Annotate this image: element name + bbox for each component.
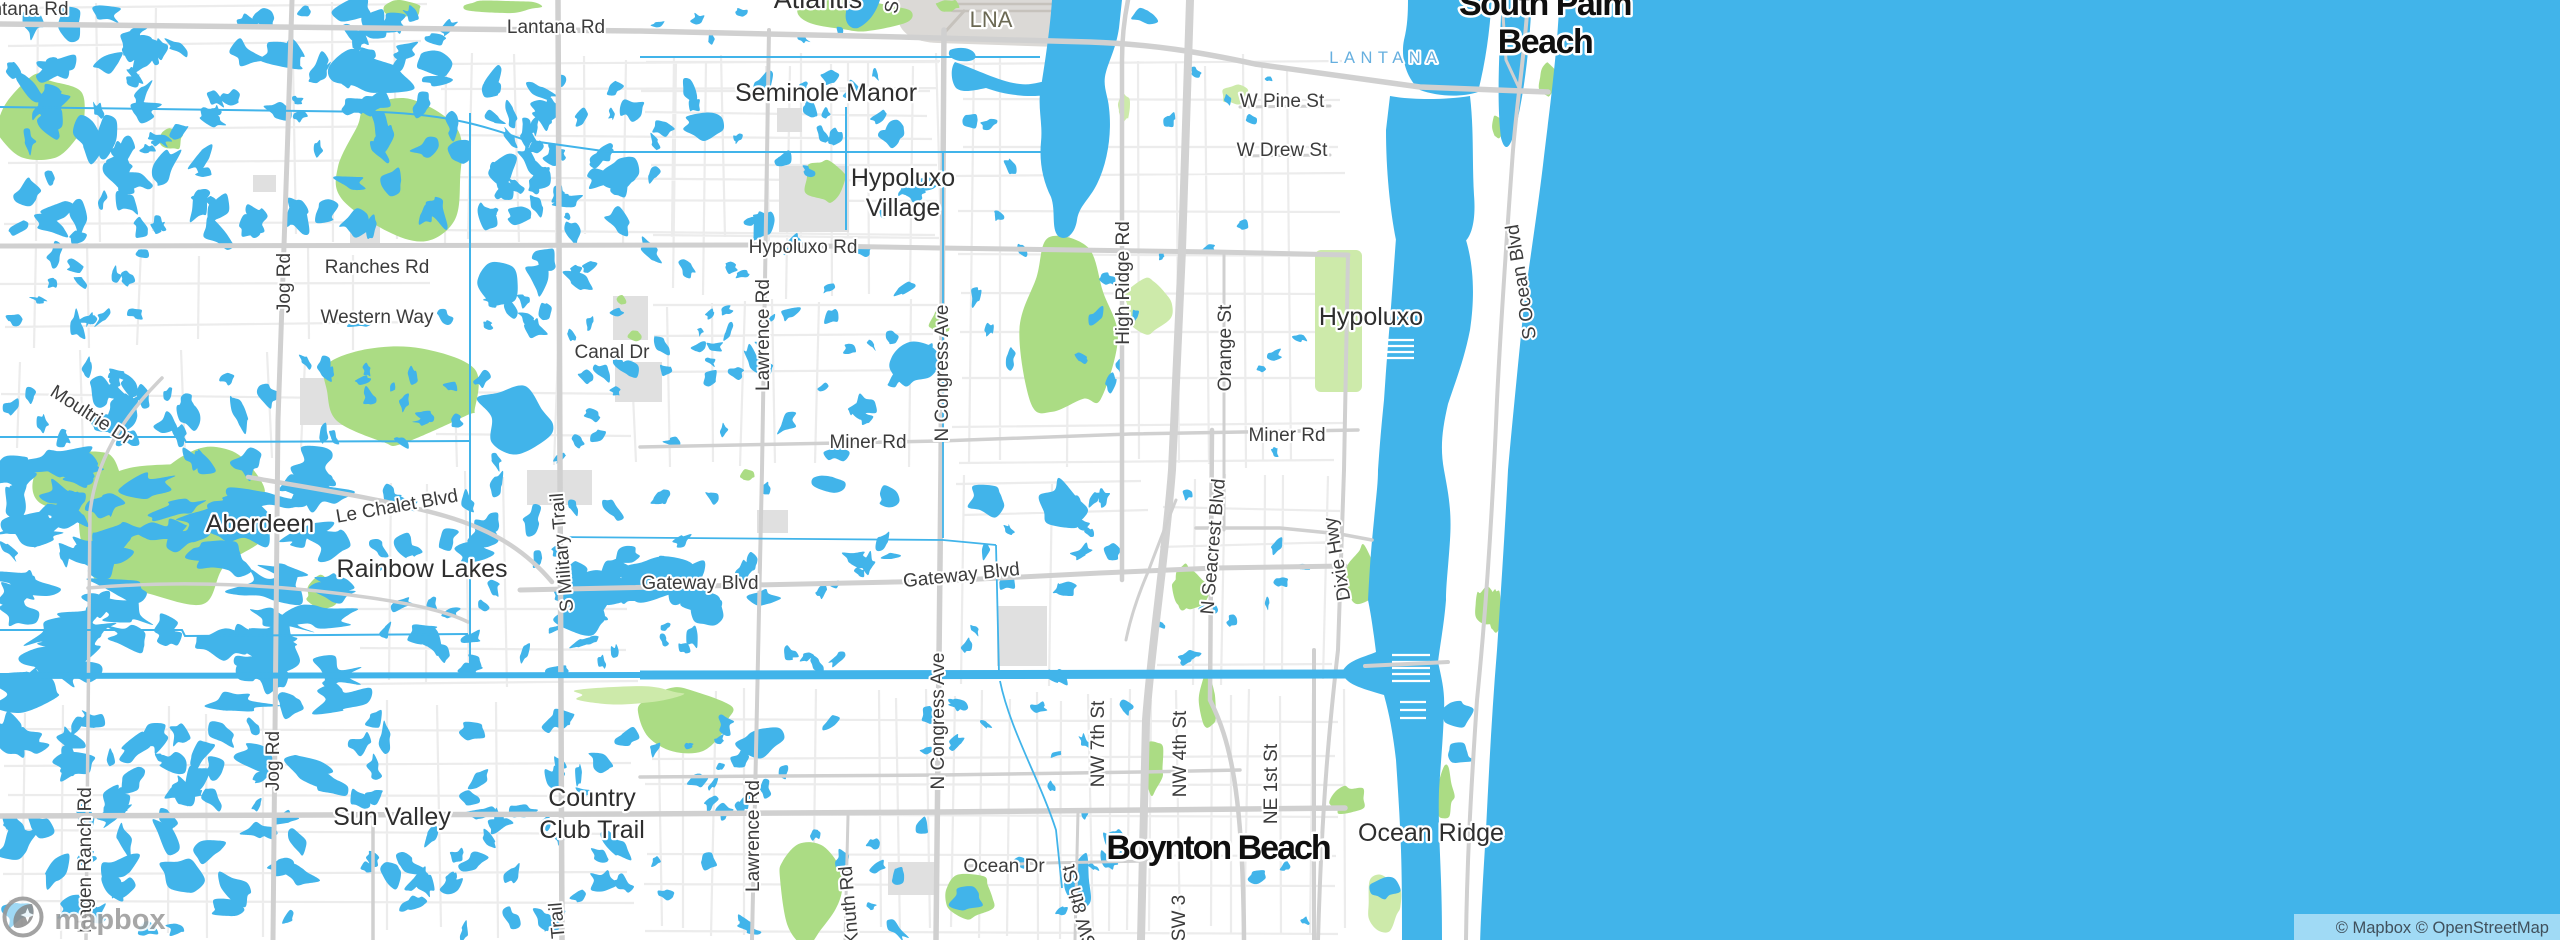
svg-text:Rainbow Lakes: Rainbow Lakes [337, 555, 508, 583]
svg-text:Jog Rd: Jog Rd [263, 731, 284, 791]
svg-text:S: S [881, 0, 904, 15]
svg-text:N Congress Ave: N Congress Ave [928, 653, 949, 790]
svg-text:Ocean Ridge: Ocean Ridge [1358, 819, 1504, 847]
svg-text:Gateway Blvd: Gateway Blvd [641, 573, 758, 594]
svg-text:Aberdeen: Aberdeen [206, 510, 314, 538]
svg-text:Hypoluxo: Hypoluxo [1319, 303, 1423, 331]
svg-text:ntana Rd: ntana Rd [0, 0, 69, 20]
svg-text:W Drew St: W Drew St [1237, 140, 1329, 161]
svg-text:Hypoluxo Rd: Hypoluxo Rd [749, 237, 858, 258]
svg-text:Atlantis: Atlantis [774, 0, 863, 14]
svg-text:Western Way: Western Way [321, 307, 434, 328]
svg-text:NW 4th St: NW 4th St [1170, 710, 1191, 797]
svg-text:Hypoluxo: Hypoluxo [851, 164, 955, 192]
svg-text:Country: Country [548, 784, 636, 812]
svg-text:NW 7th St: NW 7th St [1088, 700, 1109, 787]
svg-text:mapbox: mapbox [54, 904, 165, 936]
svg-text:Ranches Rd: Ranches Rd [325, 257, 430, 278]
svg-text:Miner Rd: Miner Rd [1248, 425, 1325, 446]
svg-text:Sun Valley: Sun Valley [333, 803, 451, 831]
svg-text:High Ridge Rd: High Ridge Rd [1113, 221, 1134, 345]
svg-text:© Mapbox © OpenStreetMap: © Mapbox © OpenStreetMap [2336, 919, 2549, 937]
svg-text:Miner Rd: Miner Rd [829, 432, 906, 453]
svg-text:LANTANA: LANTANA [1329, 49, 1442, 67]
svg-text:Lantana Rd: Lantana Rd [507, 17, 605, 38]
svg-text:Trail: Trail [545, 902, 569, 940]
svg-text:Seminole Manor: Seminole Manor [735, 79, 917, 107]
svg-text:Boynton Beach: Boynton Beach [1106, 829, 1330, 867]
svg-text:SW 3: SW 3 [1169, 895, 1190, 940]
svg-text:Ocean Dr: Ocean Dr [963, 856, 1045, 877]
svg-text:Jog Rd: Jog Rd [274, 253, 295, 313]
svg-text:Village: Village [866, 194, 941, 222]
svg-text:Club Trail: Club Trail [539, 816, 645, 844]
svg-text:LNA: LNA [970, 7, 1013, 32]
svg-text:W Pine St: W Pine St [1240, 91, 1325, 112]
svg-text:NE 1st St: NE 1st St [1261, 743, 1282, 824]
svg-text:Beach: Beach [1498, 23, 1593, 61]
svg-text:Lawrence Rd: Lawrence Rd [753, 279, 774, 391]
svg-text:N Congress Ave: N Congress Ave [932, 305, 953, 442]
svg-text:Orange St: Orange St [1215, 304, 1236, 391]
svg-text:South Palm: South Palm [1459, 0, 1631, 23]
svg-text:Canal Dr: Canal Dr [575, 342, 651, 363]
svg-text:Lawrence Rd: Lawrence Rd [743, 780, 764, 892]
